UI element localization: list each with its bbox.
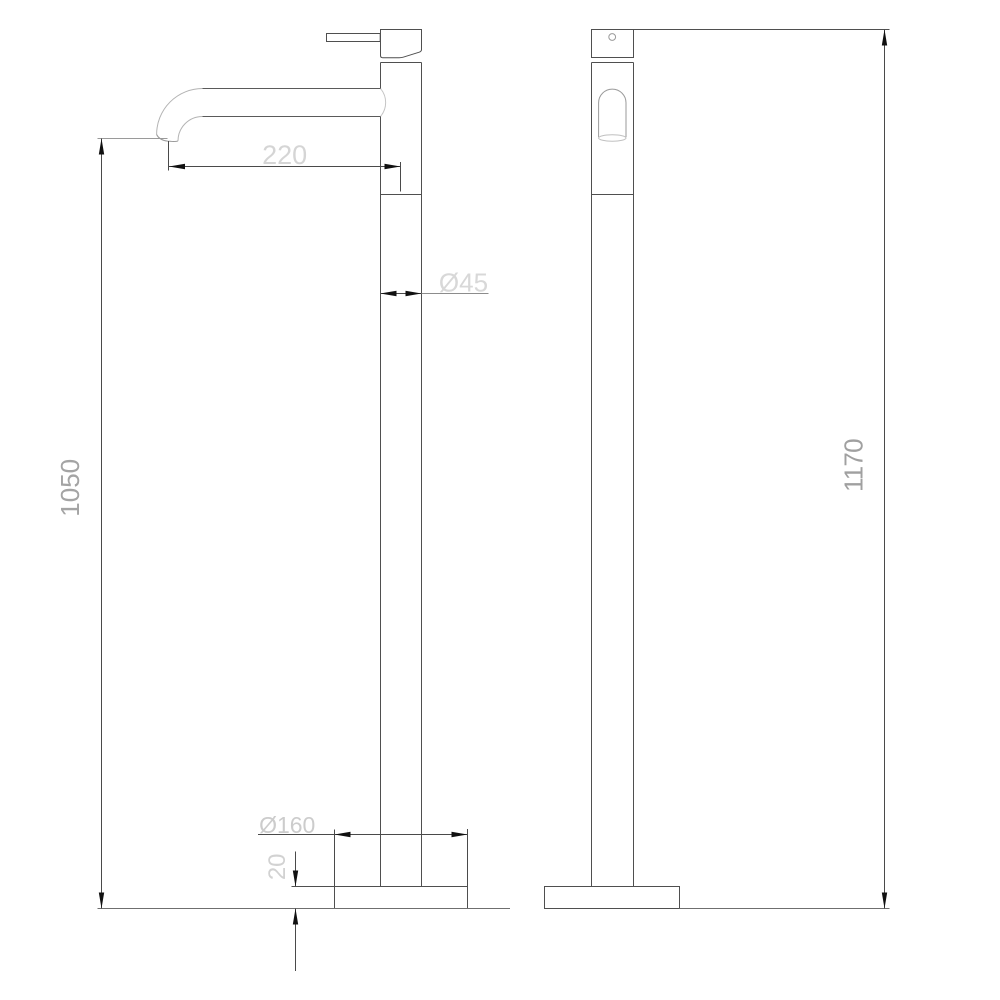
svg-text:20: 20: [264, 853, 291, 880]
svg-text:1050: 1050: [55, 459, 85, 517]
svg-text:Ø160: Ø160: [259, 812, 315, 838]
svg-text:Ø45: Ø45: [439, 267, 488, 297]
svg-text:1170: 1170: [838, 439, 868, 492]
svg-text:220: 220: [262, 140, 307, 170]
